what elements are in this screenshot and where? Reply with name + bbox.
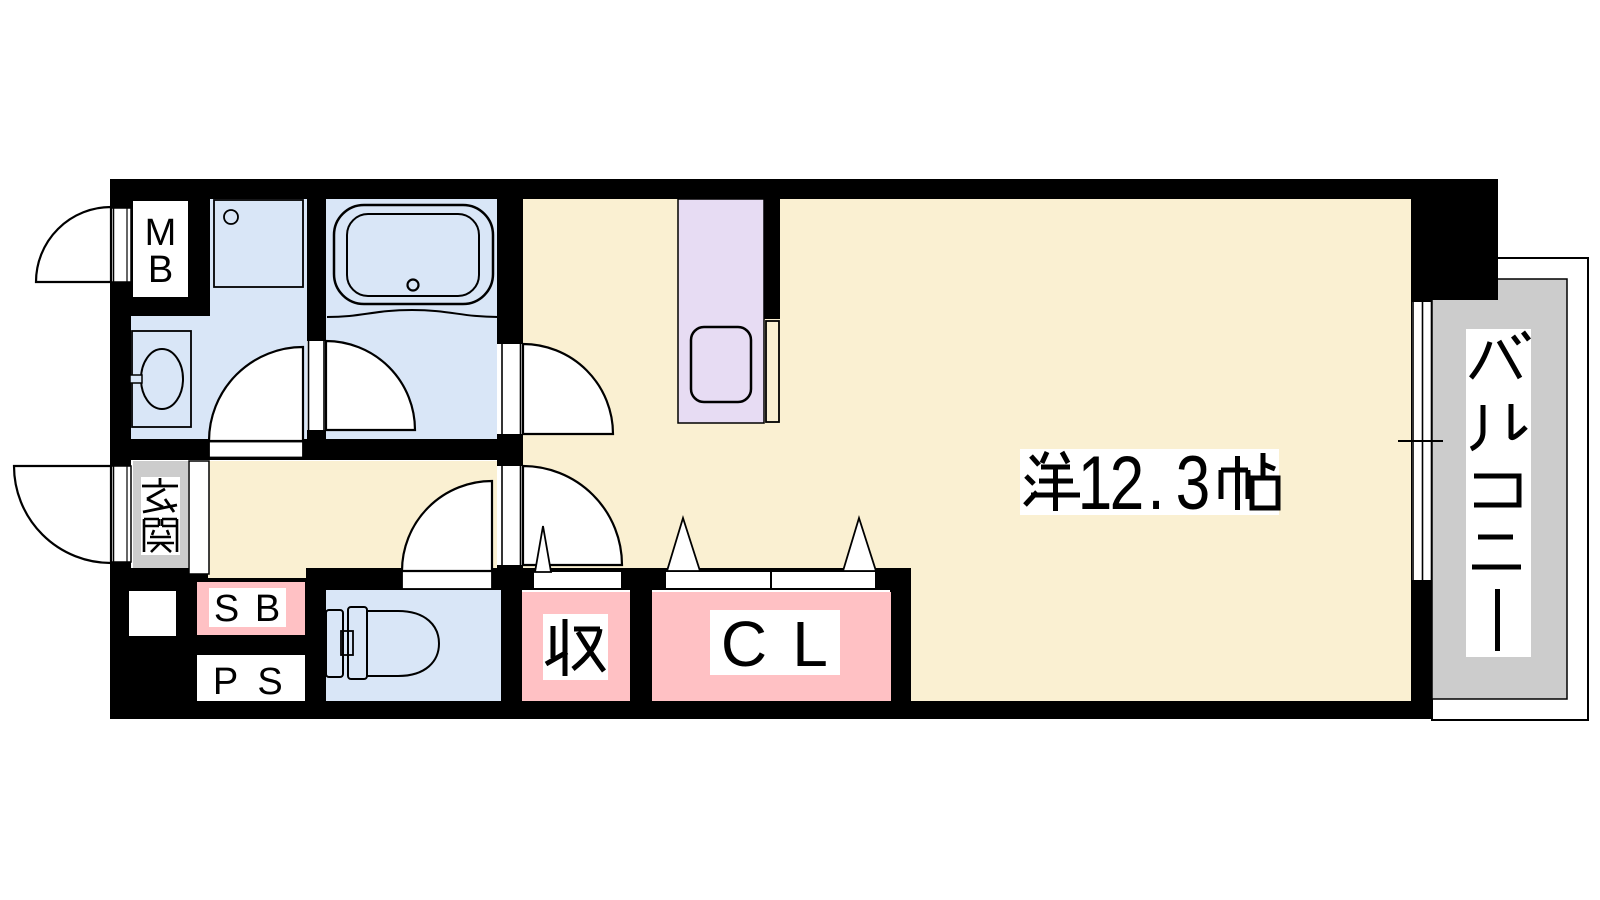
svg-text:2: 2	[1110, 440, 1145, 525]
svg-text:P: P	[213, 661, 238, 703]
svg-text:M: M	[145, 212, 177, 254]
svg-text:C: C	[721, 608, 767, 680]
svg-text:L: L	[792, 608, 828, 680]
svg-text:B: B	[255, 588, 280, 630]
svg-text:S: S	[214, 588, 239, 630]
svg-text:S: S	[257, 661, 282, 703]
svg-text:.: .	[1147, 440, 1164, 525]
svg-text:B: B	[148, 249, 173, 291]
svg-text:1: 1	[1078, 440, 1113, 525]
svg-text:3: 3	[1176, 440, 1211, 525]
